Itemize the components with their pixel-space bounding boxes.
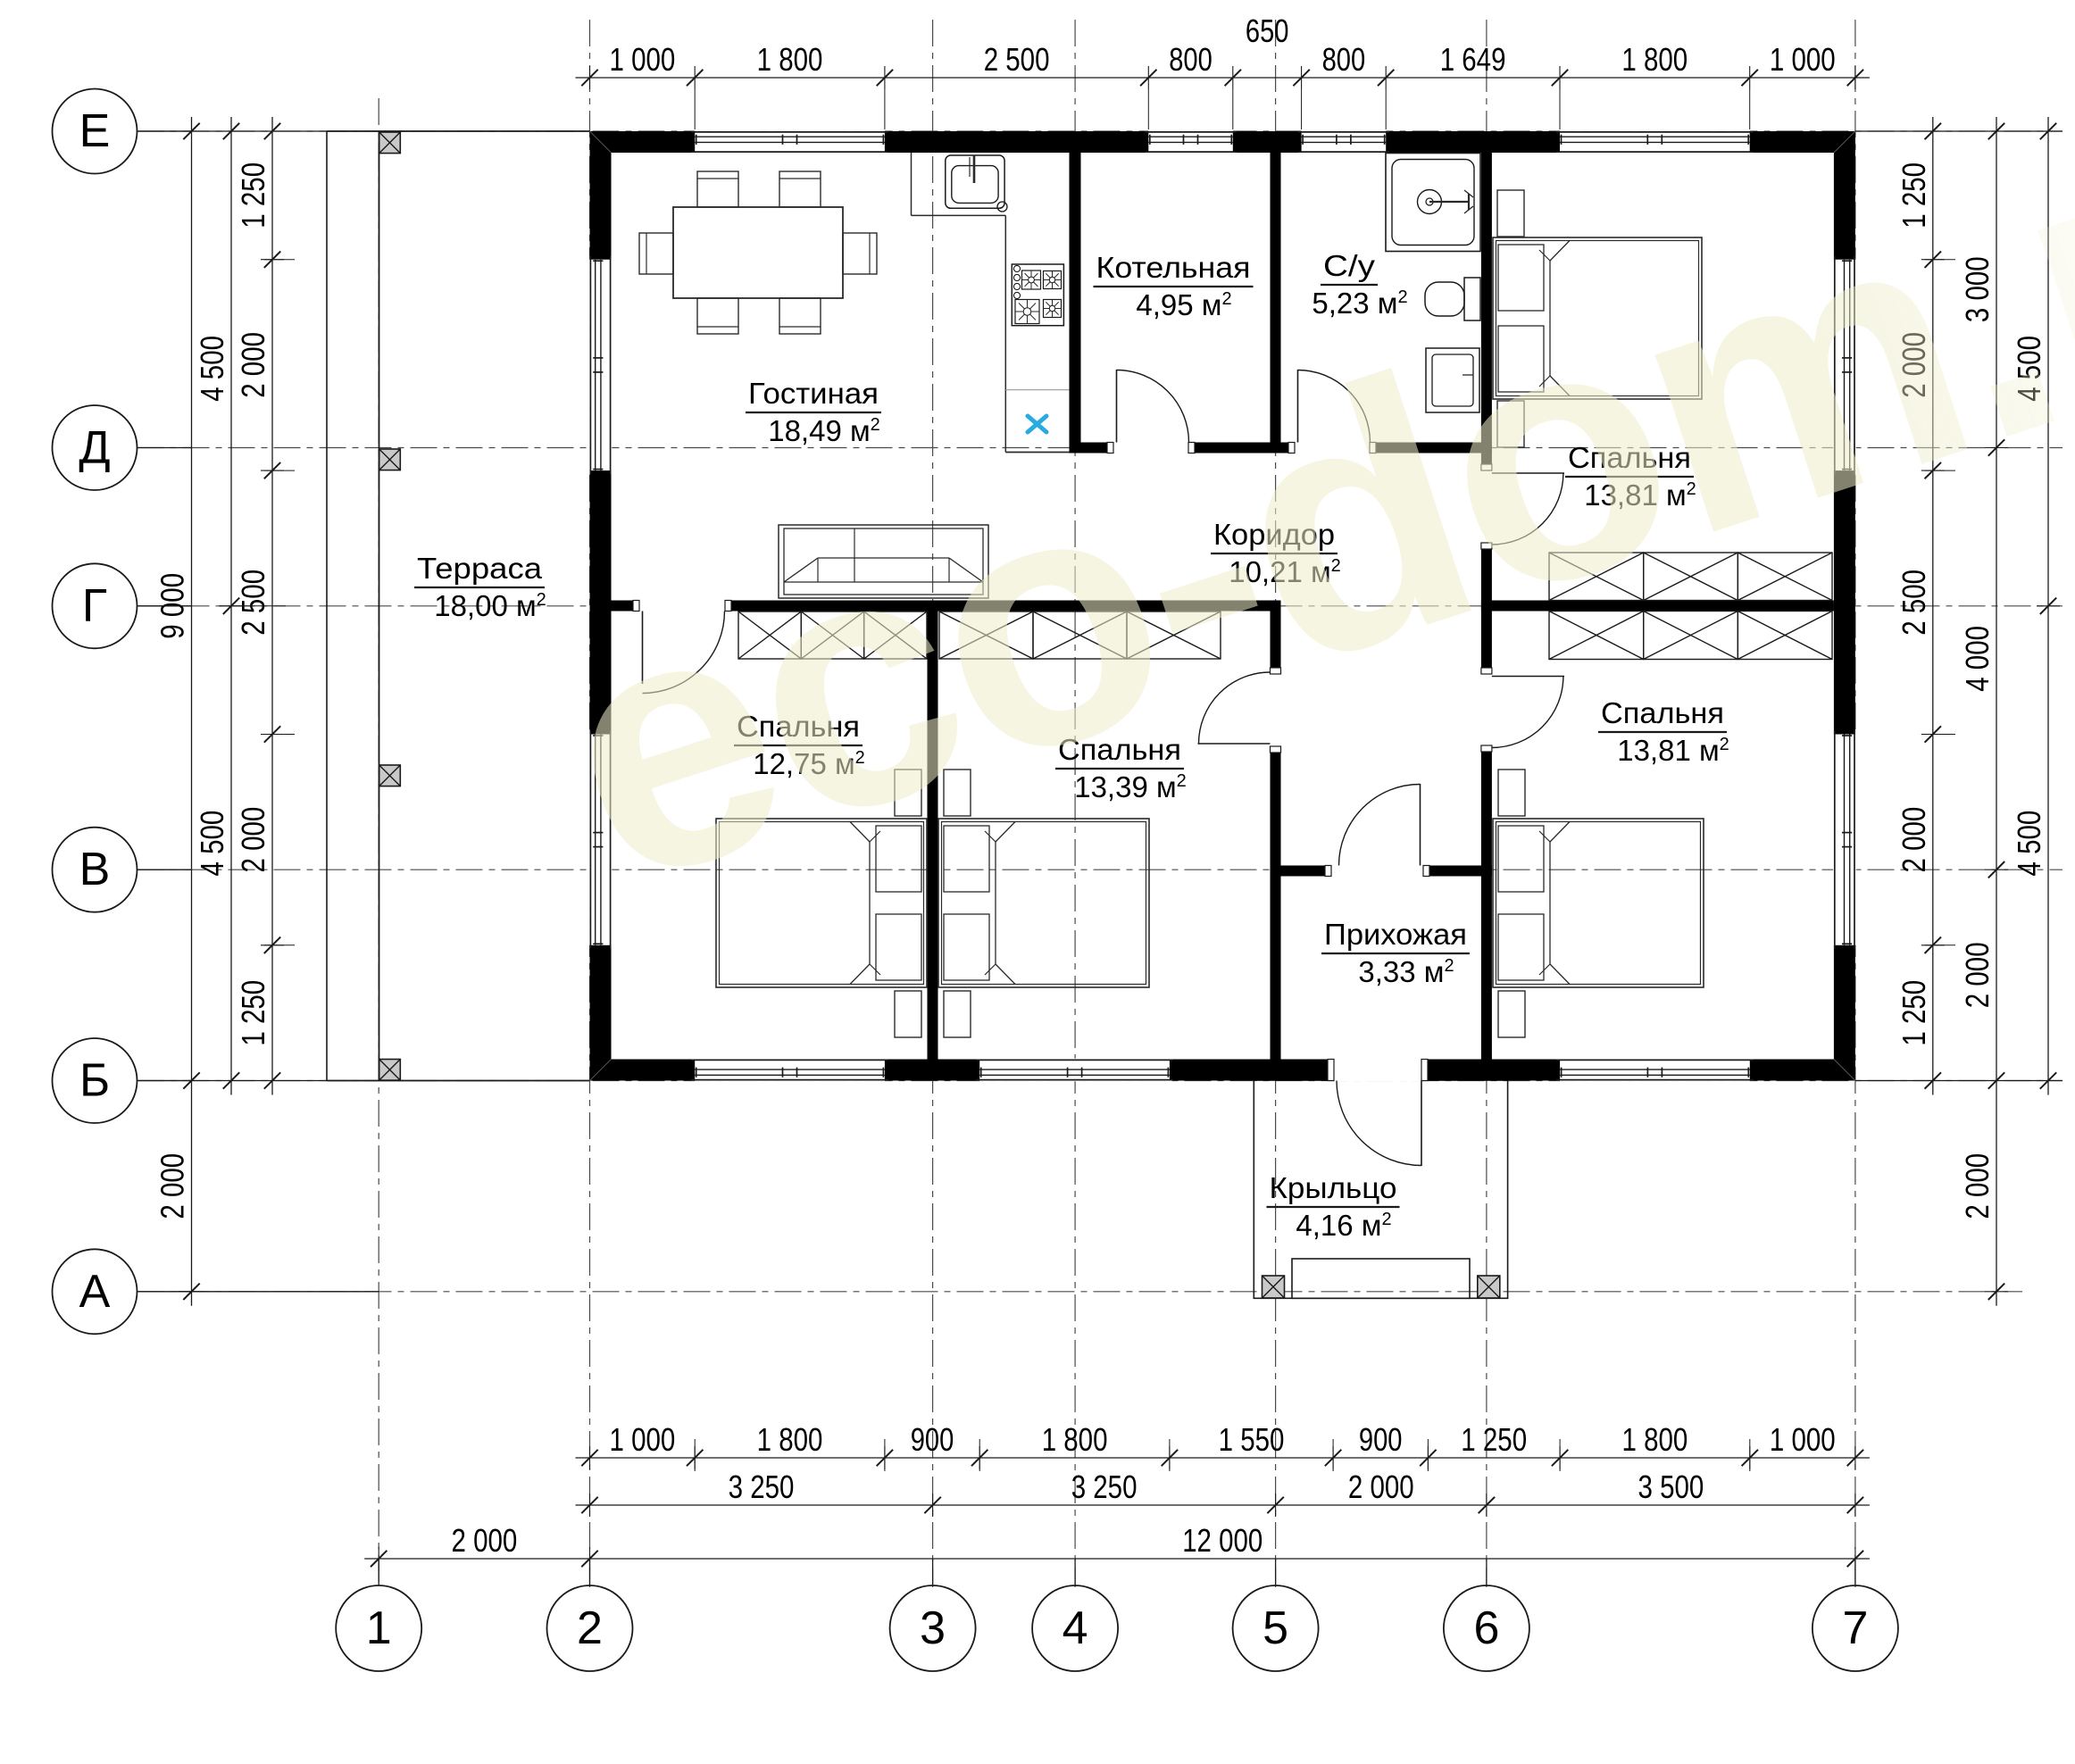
svg-text:13,81 м2: 13,81 м2: [1617, 734, 1729, 767]
svg-text:7: 7: [1842, 1602, 1868, 1654]
svg-text:2 000: 2 000: [1959, 942, 1996, 1008]
svg-text:Крыльцо: Крыльцо: [1270, 1171, 1397, 1204]
svg-text:2 000: 2 000: [452, 1522, 518, 1559]
svg-text:1 000: 1 000: [1770, 41, 1836, 78]
svg-text:1 800: 1 800: [1042, 1421, 1108, 1458]
svg-text:3,33 м2: 3,33 м2: [1358, 955, 1454, 988]
svg-text:4,95 м2: 4,95 м2: [1136, 288, 1231, 321]
svg-text:3 250: 3 250: [729, 1469, 795, 1505]
svg-text:650: 650: [1246, 12, 1289, 49]
svg-text:А: А: [79, 1266, 111, 1318]
svg-text:Спальня: Спальня: [1601, 696, 1724, 729]
svg-text:1 250: 1 250: [1896, 980, 1932, 1046]
svg-text:900: 900: [1359, 1421, 1403, 1458]
svg-text:6: 6: [1473, 1602, 1499, 1654]
svg-text:Терраса: Терраса: [417, 552, 543, 585]
svg-text:Гостиная: Гостиная: [748, 377, 879, 410]
svg-text:800: 800: [1169, 41, 1212, 78]
svg-text:4: 4: [1062, 1602, 1088, 1654]
svg-text:3: 3: [920, 1602, 946, 1654]
svg-text:1 649: 1 649: [1440, 41, 1506, 78]
svg-text:2 500: 2 500: [1896, 570, 1932, 636]
svg-text:С/у: С/у: [1323, 249, 1376, 282]
svg-text:18,49 м2: 18,49 м2: [768, 414, 880, 447]
svg-text:2 000: 2 000: [235, 332, 271, 398]
svg-text:4 500: 4 500: [2011, 811, 2047, 877]
svg-text:1 250: 1 250: [235, 162, 271, 229]
svg-text:1 550: 1 550: [1219, 1421, 1285, 1458]
svg-text:900: 900: [911, 1421, 954, 1458]
svg-text:1: 1: [366, 1602, 392, 1654]
svg-text:2 000: 2 000: [1348, 1469, 1414, 1505]
svg-text:4 000: 4 000: [1959, 626, 1996, 692]
svg-text:2 000: 2 000: [1896, 807, 1932, 873]
svg-text:Г: Г: [82, 580, 107, 632]
svg-text:1 800: 1 800: [757, 1421, 823, 1458]
svg-text:1 000: 1 000: [610, 1421, 676, 1458]
svg-text:2 000: 2 000: [154, 1153, 191, 1219]
svg-text:1 800: 1 800: [1621, 41, 1687, 78]
svg-text:Б: Б: [79, 1055, 110, 1107]
svg-text:2: 2: [577, 1602, 603, 1654]
svg-text:5: 5: [1262, 1602, 1288, 1654]
svg-text:4,16 м2: 4,16 м2: [1296, 1209, 1391, 1242]
svg-text:Котельная: Котельная: [1096, 251, 1251, 284]
svg-text:3 250: 3 250: [1071, 1469, 1137, 1505]
svg-text:800: 800: [1322, 41, 1366, 78]
svg-text:1 000: 1 000: [1770, 1421, 1836, 1458]
svg-text:12 000: 12 000: [1182, 1522, 1262, 1559]
svg-text:Прихожая: Прихожая: [1324, 918, 1467, 951]
svg-text:2 000: 2 000: [235, 807, 271, 873]
svg-text:1 250: 1 250: [1461, 1421, 1527, 1458]
svg-text:Д: Д: [79, 422, 110, 474]
svg-text:4 500: 4 500: [194, 336, 230, 402]
svg-text:Е: Е: [79, 105, 111, 157]
svg-text:3 500: 3 500: [1638, 1469, 1704, 1505]
svg-text:4 500: 4 500: [194, 811, 230, 877]
svg-text:1 000: 1 000: [610, 41, 676, 78]
svg-text:2 000: 2 000: [1959, 1153, 1996, 1219]
svg-text:1 250: 1 250: [235, 980, 271, 1046]
svg-text:1 800: 1 800: [1622, 1421, 1688, 1458]
svg-text:В: В: [79, 844, 111, 895]
svg-text:1 800: 1 800: [757, 41, 823, 78]
svg-text:2 500: 2 500: [235, 570, 271, 636]
svg-text:2 500: 2 500: [984, 41, 1050, 78]
